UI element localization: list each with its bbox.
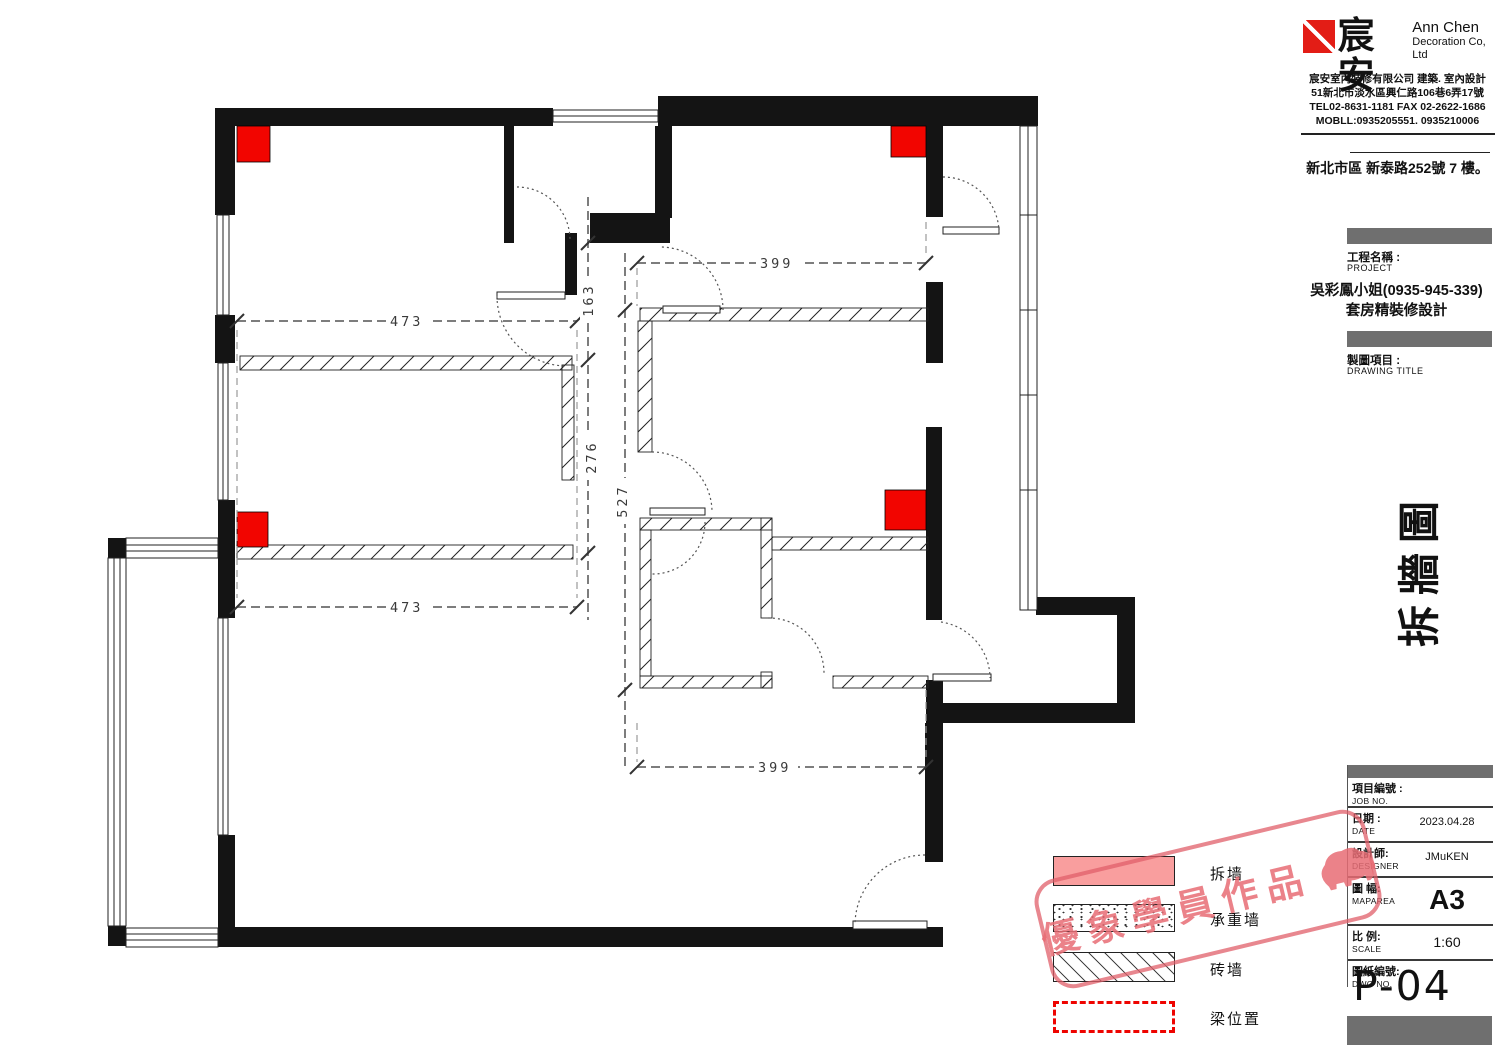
titleblock-row-maparea: 圖 幅: MAPAREA A3 xyxy=(1348,878,1493,926)
dim-label: 399 xyxy=(760,256,793,272)
project-subname: 套房精裝修設計 xyxy=(1293,299,1500,320)
scale-value: 1:60 xyxy=(1403,934,1491,950)
dim-label: 473 xyxy=(390,600,423,616)
legend-swatch-beam xyxy=(1053,1001,1175,1033)
company-mobile: MOBLL:0935205551. 0935210006 xyxy=(1295,114,1500,128)
titleblock-row-date: 日期 : DATE 2023.04.28 xyxy=(1348,808,1493,843)
date-value: 2023.04.28 xyxy=(1403,816,1491,828)
demolition-columns xyxy=(237,126,926,547)
dim-label: 527 xyxy=(615,484,631,517)
company-info: 宸安室內裝修有限公司 建築. 室內設計 51新北市淡水區興仁路106巷6弄17號… xyxy=(1295,72,1500,128)
company-address: 51新北市淡水區興仁路106巷6弄17號 xyxy=(1295,86,1500,100)
section-bar xyxy=(1347,1016,1492,1045)
titleblock-sidebar: 宸安 Ann Chen Decoration Co, Ltd 宸安室內裝修有限公… xyxy=(1295,0,1500,1061)
company-line: 宸安室內裝修有限公司 建築. 室內設計 xyxy=(1295,72,1500,86)
logo-mark-icon xyxy=(1303,20,1335,53)
designer-value: JMuKEN xyxy=(1403,851,1491,863)
company-tel: TEL02-8631-1181 FAX 02-2622-1686 xyxy=(1295,100,1500,114)
titleblock-row-designer: 設計師: DESIGNER JMuKEN xyxy=(1348,843,1493,878)
dim-label: 276 xyxy=(584,440,600,473)
maparea-value: A3 xyxy=(1403,884,1491,916)
drawing-sheet: 473 473 399 399 163 276 527 拆墙 承重墙 砖墙 梁位… xyxy=(0,0,1500,1061)
sheet-number: P-04 xyxy=(1353,962,1452,1010)
brand-name-en: Ann Chen Decoration Co, Ltd xyxy=(1412,19,1500,62)
dim-labels: 473 473 399 399 163 276 527 xyxy=(390,256,793,776)
divider xyxy=(1301,133,1495,135)
divider xyxy=(1350,152,1490,153)
site-address: 新北市區 新泰路252號 7 樓。 xyxy=(1295,158,1500,178)
legend-label: 砖墙 xyxy=(1210,959,1244,980)
door-leaves xyxy=(497,227,999,929)
legend-label: 梁位置 xyxy=(1210,1008,1261,1029)
legend-swatch-brick xyxy=(1053,952,1175,982)
project-label-en: PROJECT xyxy=(1347,263,1393,273)
project-name: 吳彩鳳小姐(0935-945-339) xyxy=(1293,279,1500,300)
section-bar xyxy=(1347,331,1492,347)
dim-label: 473 xyxy=(390,314,423,330)
legend-label: 拆墙 xyxy=(1210,863,1244,884)
legend-swatch-load-bearing xyxy=(1053,904,1175,932)
titleblock-row-scale: 比 例: SCALE 1:60 xyxy=(1348,926,1493,961)
titleblock-row-jobno: 項目編號 : JOB NO. xyxy=(1348,778,1493,808)
dim-label: 163 xyxy=(581,283,597,316)
legend-label: 承重墙 xyxy=(1210,909,1261,930)
section-bar xyxy=(1348,765,1493,778)
drawing-title-vertical: 拆牆圖 xyxy=(1396,484,1444,654)
floor-plan: 473 473 399 399 163 276 527 xyxy=(0,0,1290,1061)
legend-swatch-demolish xyxy=(1053,856,1175,886)
dim-label: 399 xyxy=(758,760,791,776)
drawing-title-label-en: DRAWING TITLE xyxy=(1347,366,1424,376)
titleblock-table: 項目編號 : JOB NO. 日期 : DATE 2023.04.28 設計師:… xyxy=(1347,765,1493,987)
section-bar xyxy=(1347,228,1492,244)
dimensions: 473 473 399 399 163 276 527 xyxy=(230,197,933,776)
